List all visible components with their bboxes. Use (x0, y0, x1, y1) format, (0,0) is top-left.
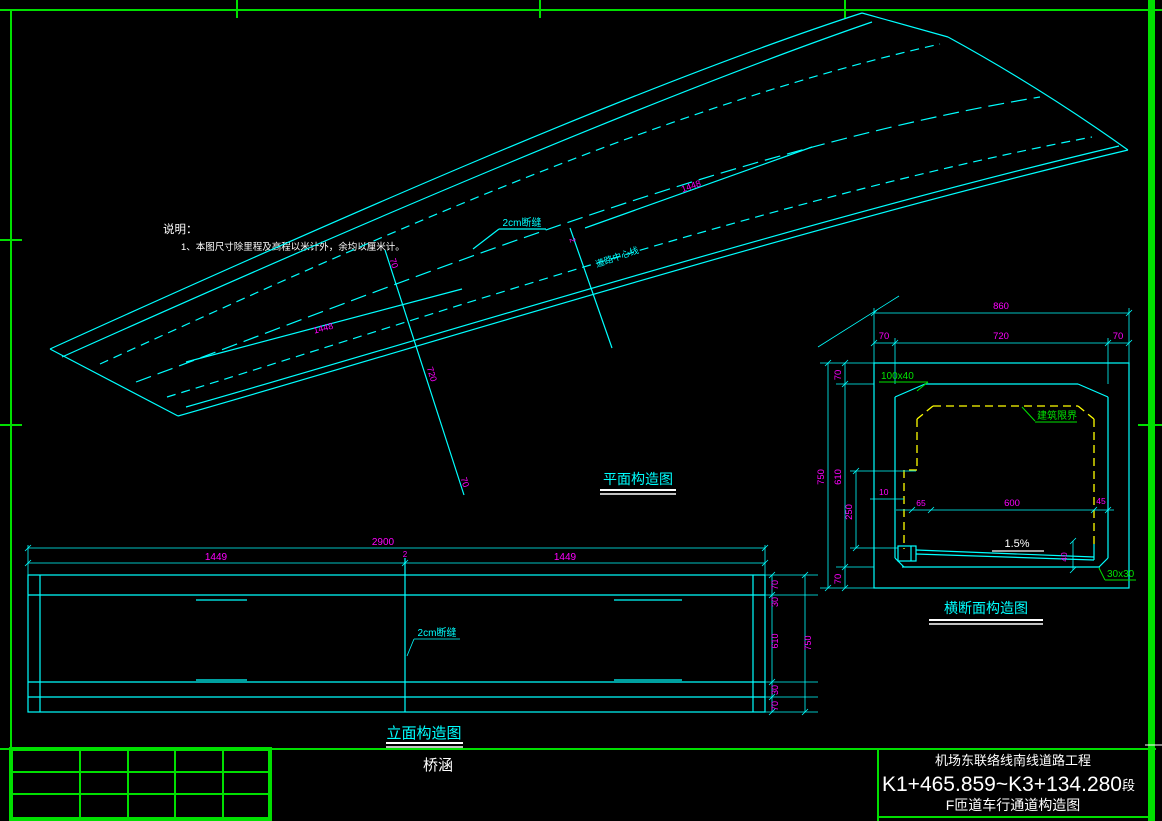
plan-dim-1448-upper: 1448 (680, 178, 702, 194)
section-label-chamfer-top: 100x40 (881, 371, 914, 382)
section-dim-left-70-top: 70 (833, 370, 844, 381)
section-curb (898, 546, 916, 561)
plan-section-cut-line (385, 250, 464, 495)
plan-end-cut-right (862, 13, 948, 37)
drawing-area: 说明： 1、本图尺寸除里程及高程以米计外，余均以厘米计。 70 720 (0, 0, 1162, 821)
elevation-joint-leader (407, 639, 414, 656)
section-chamfer-bottom-right (1099, 558, 1108, 567)
plan-joint-leader (473, 229, 499, 249)
section-dim-left-70-bot: 70 (833, 574, 844, 585)
notes-heading: 说明： (163, 222, 198, 236)
plan-joint-label: 2cm断缝 (503, 216, 542, 229)
elevation-dim-total: 2900 (372, 537, 395, 548)
plan-joint-line (570, 228, 612, 348)
section-dim-70-right: 70 (1113, 331, 1124, 342)
section-dim-750: 750 (816, 469, 827, 485)
titleblock-stake-suffix: 段 (1122, 778, 1135, 793)
sheet-frame (0, 0, 1162, 821)
section-dim-70-left: 70 (879, 331, 890, 342)
plan-title: 平面构造图 (603, 471, 673, 487)
elevation-title: 立面构造图 (386, 725, 461, 742)
section-dim-left-610: 610 (833, 469, 844, 485)
plan-outer-lower-edge (178, 150, 1128, 416)
titleblock-project: 机场东联络线南线道路工程 (935, 753, 1091, 768)
section-dim-40: 40 (1059, 552, 1069, 562)
elevation-dim-joint: 2 (403, 550, 408, 559)
elevation-dim-750: 750 (803, 635, 813, 650)
notes: 说明： 1、本图尺寸除里程及高程以米计外，余均以厘米计。 (163, 222, 405, 253)
section-label-chamfer-bottom: 30x30 (1107, 569, 1135, 580)
elevation-dim-70-top: 70 (770, 580, 780, 590)
plan-inner-lower-edge (186, 146, 1119, 407)
plan-view: 70 720 70 2 1448 1448 道路中心线 2cm断缝 平面构造图 (50, 13, 1128, 495)
plan-lane-dashed-2 (167, 137, 1092, 397)
plan-end-cut-left (50, 349, 178, 416)
elevation-dim-30-bot: 30 (770, 685, 780, 695)
elevation-dim-left-span: 1449 (205, 552, 228, 563)
section-label-clearance: 建筑限界 (1037, 409, 1077, 422)
section-slope-label: 1.5% (1004, 538, 1029, 550)
section-chamfer-top-left (895, 384, 925, 397)
section-outer-box (874, 363, 1129, 588)
section-dim-10: 10 (879, 487, 889, 497)
plan-dim-2: 2 (567, 237, 577, 245)
section-chamfer-top-right (1078, 384, 1108, 397)
section-view: 860 70 720 70 750 70 610 70 250 10 65 60… (816, 296, 1136, 624)
elevation-joint-label: 2cm断缝 (418, 626, 457, 639)
section-dim-65: 65 (916, 498, 926, 508)
titleblock-drawing-name: F匝道车行通道构造图 (946, 797, 1081, 813)
section-dim-250: 250 (844, 504, 855, 520)
right-border-bar (1148, 0, 1155, 821)
plan-dim-70-top: 70 (388, 257, 400, 270)
elevation-dim-right-span: 1449 (554, 552, 577, 563)
plan-right-edge (948, 37, 1128, 150)
elevation-dim-30-top: 30 (770, 597, 780, 607)
elevation-view: 2900 1449 2 1449 70 30 610 30 70 750 2cm… (25, 537, 818, 747)
titleblock-category: 桥涵 (423, 757, 453, 774)
elevation-dim-70-bot: 70 (770, 701, 780, 711)
signature-grid (11, 749, 270, 819)
plan-outer-upper-edge (50, 13, 862, 349)
section-chamfer-bottom-left (895, 558, 904, 567)
section-dim-720: 720 (993, 331, 1009, 342)
cad-sheet: 说明： 1、本图尺寸除里程及高程以米计外，余均以厘米计。 70 720 (0, 0, 1162, 821)
notes-item-1: 1、本图尺寸除里程及高程以米计外，余均以厘米计。 (181, 241, 405, 253)
section-dim-600: 600 (1004, 498, 1020, 509)
section-clearance-outline (904, 406, 1094, 549)
section-dim-860: 860 (993, 301, 1009, 312)
plan-centerline-label: 道路中心线 (594, 244, 640, 269)
elevation-dim-610: 610 (770, 633, 780, 648)
plan-inner-upper-edge (62, 22, 872, 357)
plan-dim-70-bottom: 70 (459, 476, 471, 489)
section-dim-45: 45 (1096, 496, 1106, 506)
titleblock-stake: K1+465.859~K3+134.280 (882, 773, 1122, 796)
title-block: 桥涵 机场东联络线南线道路工程 K1+465.859~K3+134.280 段 … (423, 749, 1148, 821)
plan-dim-1448-lower: 1448 (312, 321, 334, 336)
section-title: 横断面构造图 (944, 600, 1028, 616)
